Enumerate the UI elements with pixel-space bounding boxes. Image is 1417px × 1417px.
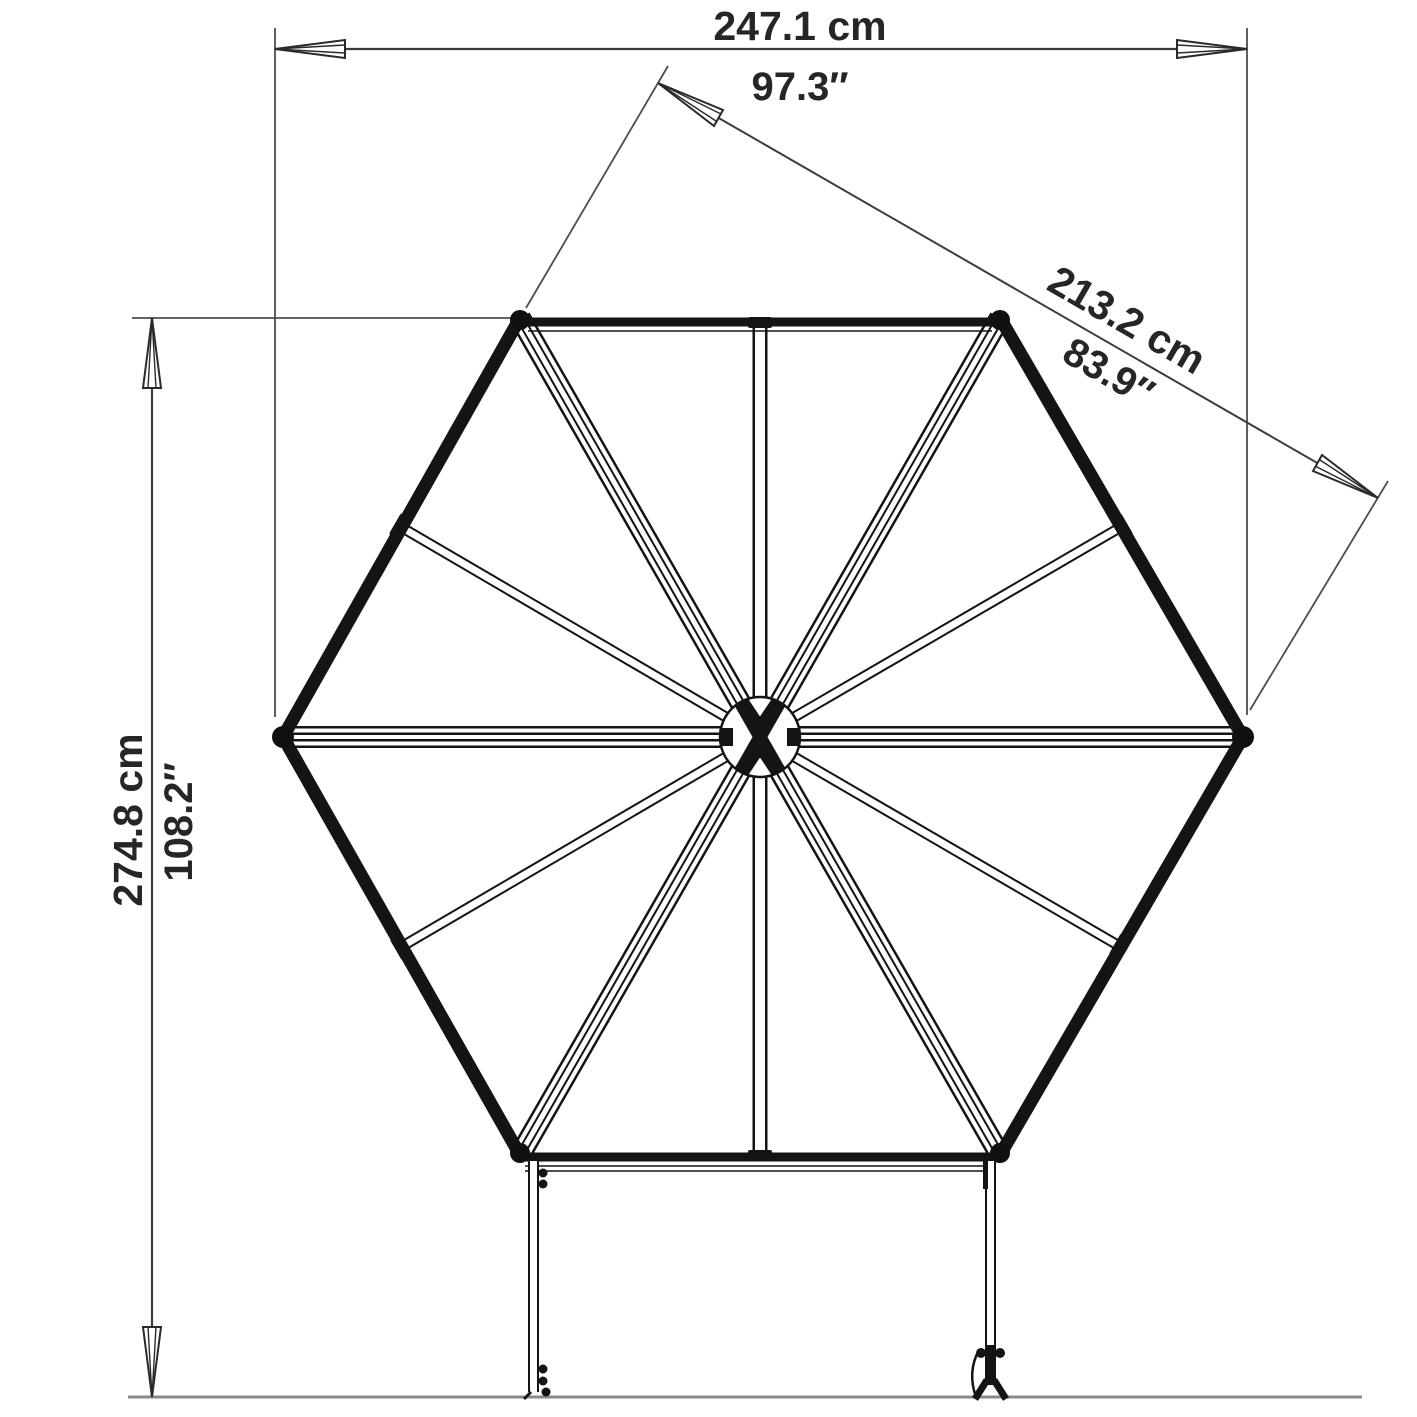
spoke-bottom-right [760, 737, 1000, 1155]
left-leg [524, 1161, 551, 1399]
arrow-lower-right-icon [1313, 455, 1378, 498]
width-dimension: 247.1 cm 97.3″ [275, 3, 1247, 109]
height-inches-label: 108.2″ [157, 762, 201, 881]
spoke-top-right [760, 318, 1000, 737]
arrow-left-icon [275, 40, 345, 58]
anchor-foot [972, 1345, 1006, 1399]
arrow-upper-left-icon [658, 83, 723, 126]
technical-drawing-canvas: 247.1 cm 97.3″ 274.8 cm 108.2″ [0, 0, 1417, 1417]
arrow-down-icon [143, 1327, 161, 1397]
drawing-svg: 247.1 cm 97.3″ 274.8 cm 108.2″ [0, 0, 1417, 1417]
left-leg-fittings [539, 1169, 551, 1397]
height-cm-label: 274.8 cm [105, 733, 151, 906]
spoke-bottom-left [520, 737, 760, 1155]
arrow-right-icon [1177, 40, 1247, 58]
center-hub [720, 697, 800, 777]
width-cm-label: 247.1 cm [713, 3, 886, 49]
spoke-top-left [520, 318, 760, 737]
arrow-up-icon [143, 318, 161, 388]
width-inches-label: 97.3″ [751, 65, 848, 109]
height-dimension: 274.8 cm 108.2″ [105, 318, 201, 1397]
right-leg [972, 1161, 1006, 1399]
